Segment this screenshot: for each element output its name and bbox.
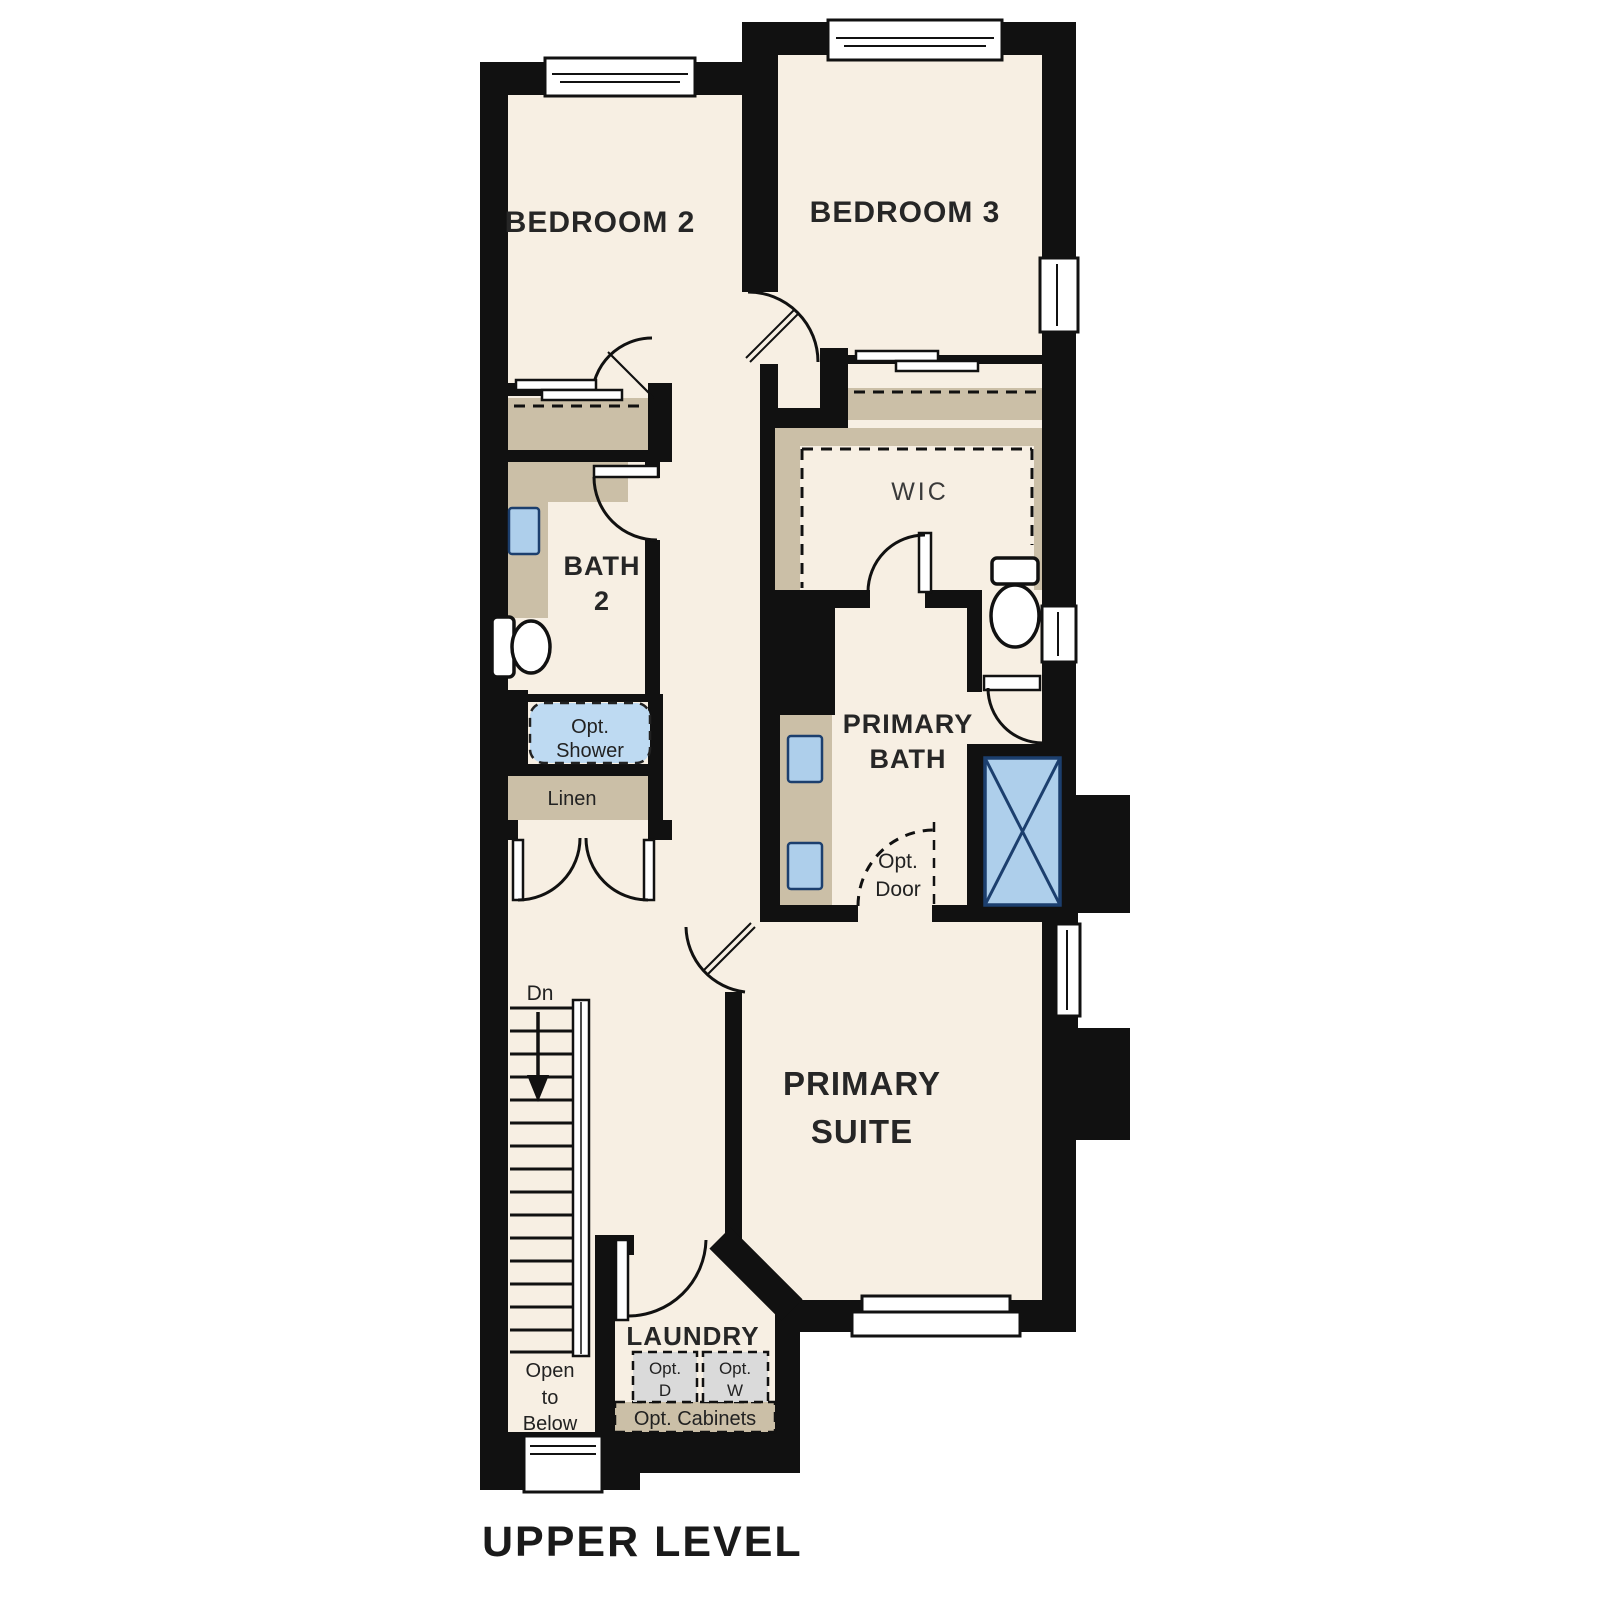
stairwell-window	[524, 1436, 602, 1492]
toilet-room-threshold	[984, 676, 1040, 690]
primary-sink-1	[788, 736, 822, 782]
bedroom3-label: BEDROOM 3	[810, 196, 1001, 229]
bedroom2-label: BEDROOM 2	[505, 206, 696, 239]
opt-shower-label-line1: Opt.	[571, 716, 609, 738]
hall-double-door-leaf-right	[644, 840, 654, 900]
linen-label: Linen	[548, 788, 597, 810]
wall-bath2-east-lower	[645, 540, 660, 700]
open-to-below-label-line1: Open	[526, 1360, 575, 1382]
bedroom2-closet-slider-panel	[516, 380, 596, 390]
primary-bath-label-line1: PRIMARY	[843, 709, 974, 739]
stairs-down-label: Dn	[527, 982, 554, 1005]
bath2-label-line1: BATH	[564, 551, 641, 581]
wall-bedroom-divider	[742, 22, 778, 292]
wall-shower-west	[505, 690, 528, 770]
hall-double-door-leaf-left	[513, 840, 523, 900]
wall-shower2-north	[967, 744, 1058, 758]
primary-suite-window	[862, 1296, 1010, 1312]
wall-laundry-west	[595, 1235, 615, 1432]
wall-linen-south-west	[480, 820, 518, 840]
plan-title: UPPER LEVEL	[482, 1518, 803, 1566]
bedroom2-window	[545, 58, 695, 96]
wall-shower2-west	[967, 758, 985, 908]
primary-toilet-tank	[992, 558, 1038, 584]
bath2-label-line2: 2	[594, 586, 610, 616]
open-to-below-label-line3: Below	[523, 1413, 578, 1435]
floor-plan-page: BEDROOM 2 BEDROOM 3 BATH 2 WIC PRIMARY B…	[0, 0, 1600, 1600]
bath2-toilet-bowl	[512, 621, 550, 673]
opt-washer-label-line1: Opt.	[719, 1359, 751, 1378]
open-to-below-label-line2: to	[542, 1387, 559, 1409]
bedroom2-closet-slider-panel	[542, 390, 622, 400]
opt-washer-label-line2: W	[727, 1381, 743, 1400]
wic-door-leaf	[919, 533, 931, 592]
bedroom3-closet-slider-panel	[856, 351, 938, 361]
wall-bath-south-west	[760, 905, 858, 922]
laundry-door-leaf	[616, 1240, 628, 1320]
opt-dryer-label-line2: D	[659, 1381, 671, 1400]
wall-closet-wic-stub	[763, 408, 848, 430]
bedroom3-window	[828, 20, 1002, 60]
primary-suite-label-line2: SUITE	[811, 1113, 913, 1150]
opt-cabinets-label: Opt. Cabinets	[634, 1408, 756, 1430]
wall-linen-south-east	[650, 820, 672, 840]
opt-door-label-line2: Door	[875, 878, 921, 901]
bedroom3-side-window	[1040, 258, 1078, 332]
opt-door-label-line1: Opt.	[878, 850, 918, 873]
primary-suite-label-line1: PRIMARY	[783, 1065, 941, 1102]
opt-dryer-label-line1: Opt.	[649, 1359, 681, 1378]
wall-hall-bath	[760, 715, 780, 908]
wall-bath-south-east	[932, 905, 1076, 922]
bath2-door-leaf	[594, 466, 658, 477]
bath2-sink	[509, 508, 539, 554]
bedroom3-closet-slider-panel	[896, 361, 978, 371]
wall-wic-south-west	[760, 588, 870, 608]
opt-shower-label-line2: Shower	[556, 740, 624, 762]
laundry-label: LAUNDRY	[626, 1321, 759, 1351]
primary-suite-window-sill	[852, 1312, 1020, 1336]
primary-toilet-bowl	[991, 585, 1039, 647]
wall-shower-north	[508, 694, 655, 702]
wic-label: WIC	[891, 478, 949, 506]
wall-bath-corner-block	[760, 608, 835, 715]
wall-linen-north	[508, 764, 655, 776]
primary-bath-label-line2: BATH	[870, 744, 947, 774]
wall-suite-hall	[725, 992, 742, 1242]
floor-plan-canvas: BEDROOM 2 BEDROOM 3 BATH 2 WIC PRIMARY B…	[0, 0, 1600, 1600]
primary-sink-2	[788, 843, 822, 889]
